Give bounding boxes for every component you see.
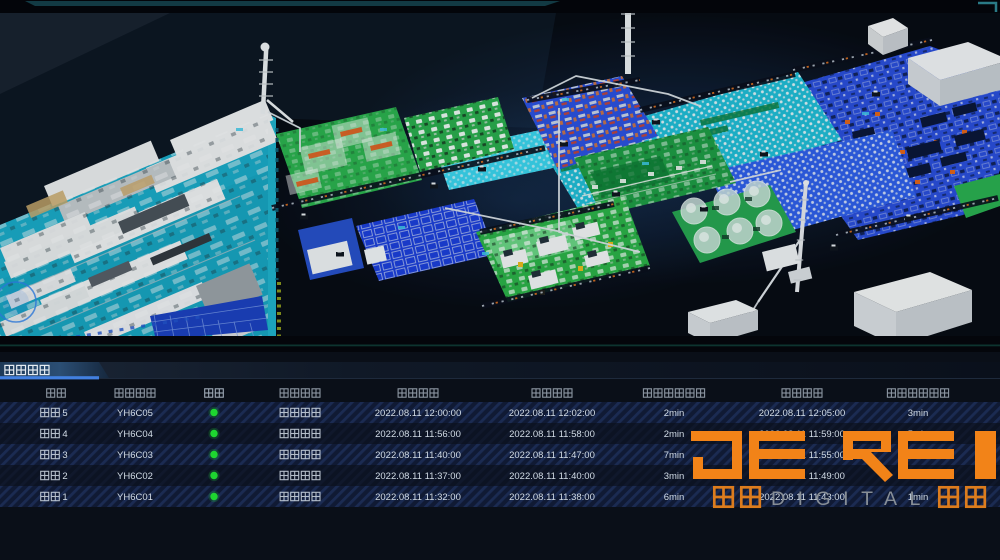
svg-text:YH6C03: YH6C03 <box>117 450 153 461</box>
svg-text:YH6C04: YH6C04 <box>117 429 153 440</box>
svg-text:3min: 3min <box>664 471 685 482</box>
svg-text:2022.08.11 11:38:00: 2022.08.11 11:38:00 <box>509 492 595 503</box>
svg-text:2022.08.11 12:05:00: 2022.08.11 12:05:00 <box>759 408 845 419</box>
svg-text:2022.08.11 12:00:00: 2022.08.11 12:00:00 <box>375 408 461 419</box>
svg-text:2: 2 <box>62 471 67 482</box>
svg-text:2022.08.11 11:47:00: 2022.08.11 11:47:00 <box>509 450 595 461</box>
svg-text:YH6C01: YH6C01 <box>117 492 153 503</box>
svg-text:2022.08.11 11:37:00: 2022.08.11 11:37:00 <box>375 471 461 482</box>
svg-text:YH6C05: YH6C05 <box>117 408 153 419</box>
svg-text:2022.08.11 11:32:00: 2022.08.11 11:32:00 <box>375 492 461 503</box>
svg-text:2022.08.11 11:40:00: 2022.08.11 11:40:00 <box>509 471 595 482</box>
svg-text:YH6C02: YH6C02 <box>117 471 153 482</box>
svg-text:3: 3 <box>62 450 67 461</box>
svg-text:1: 1 <box>62 492 67 503</box>
svg-text:2min: 2min <box>664 429 685 440</box>
svg-text:DIGITAL: DIGITAL <box>771 488 933 510</box>
svg-text:2022.08.11 11:58:00: 2022.08.11 11:58:00 <box>509 429 595 440</box>
svg-text:3min: 3min <box>908 408 929 419</box>
svg-text:2022.08.11 11:40:00: 2022.08.11 11:40:00 <box>375 450 461 461</box>
svg-text:2022.08.11 11:56:00: 2022.08.11 11:56:00 <box>375 429 461 440</box>
svg-text:6min: 6min <box>664 492 685 503</box>
svg-text:4: 4 <box>62 429 67 440</box>
svg-text:7min: 7min <box>664 450 685 461</box>
svg-text:2022.08.11 12:02:00: 2022.08.11 12:02:00 <box>509 408 595 419</box>
svg-text:5: 5 <box>62 408 67 419</box>
svg-text:2min: 2min <box>664 408 685 419</box>
